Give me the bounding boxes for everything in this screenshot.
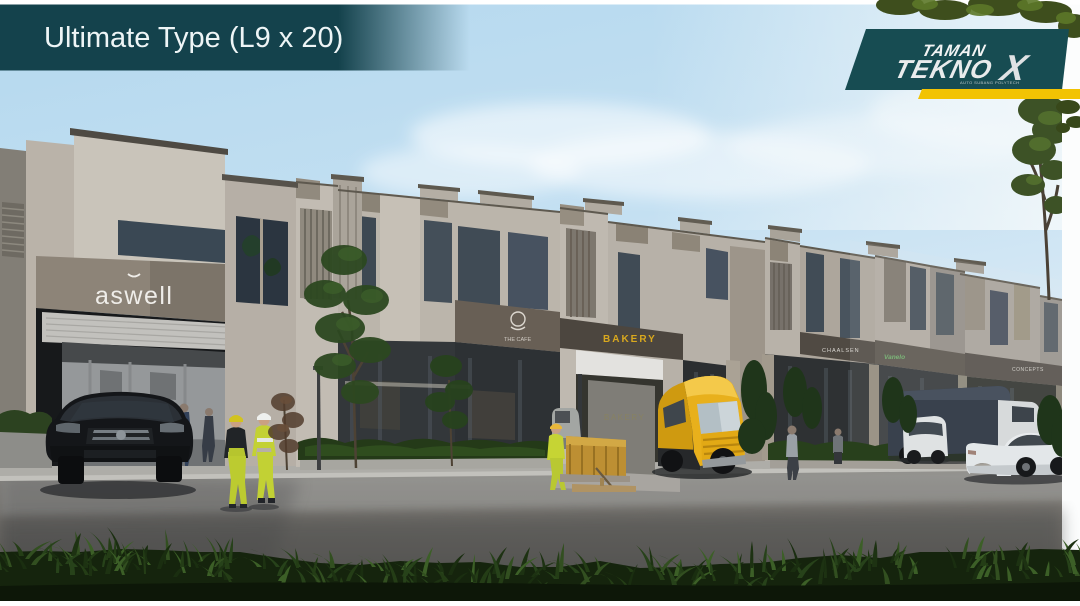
svg-text:AUTO SUBANG POLYTECH: AUTO SUBANG POLYTECH xyxy=(960,80,1019,85)
svg-text:aswell: aswell xyxy=(95,282,173,310)
svg-text:Ultimate Type (L9 x 20): Ultimate Type (L9 x 20) xyxy=(44,22,343,54)
svg-text:THE CAFE: THE CAFE xyxy=(504,337,532,343)
svg-text:BAKERY: BAKERY xyxy=(604,413,645,422)
svg-text:BAKERY: BAKERY xyxy=(603,334,657,345)
